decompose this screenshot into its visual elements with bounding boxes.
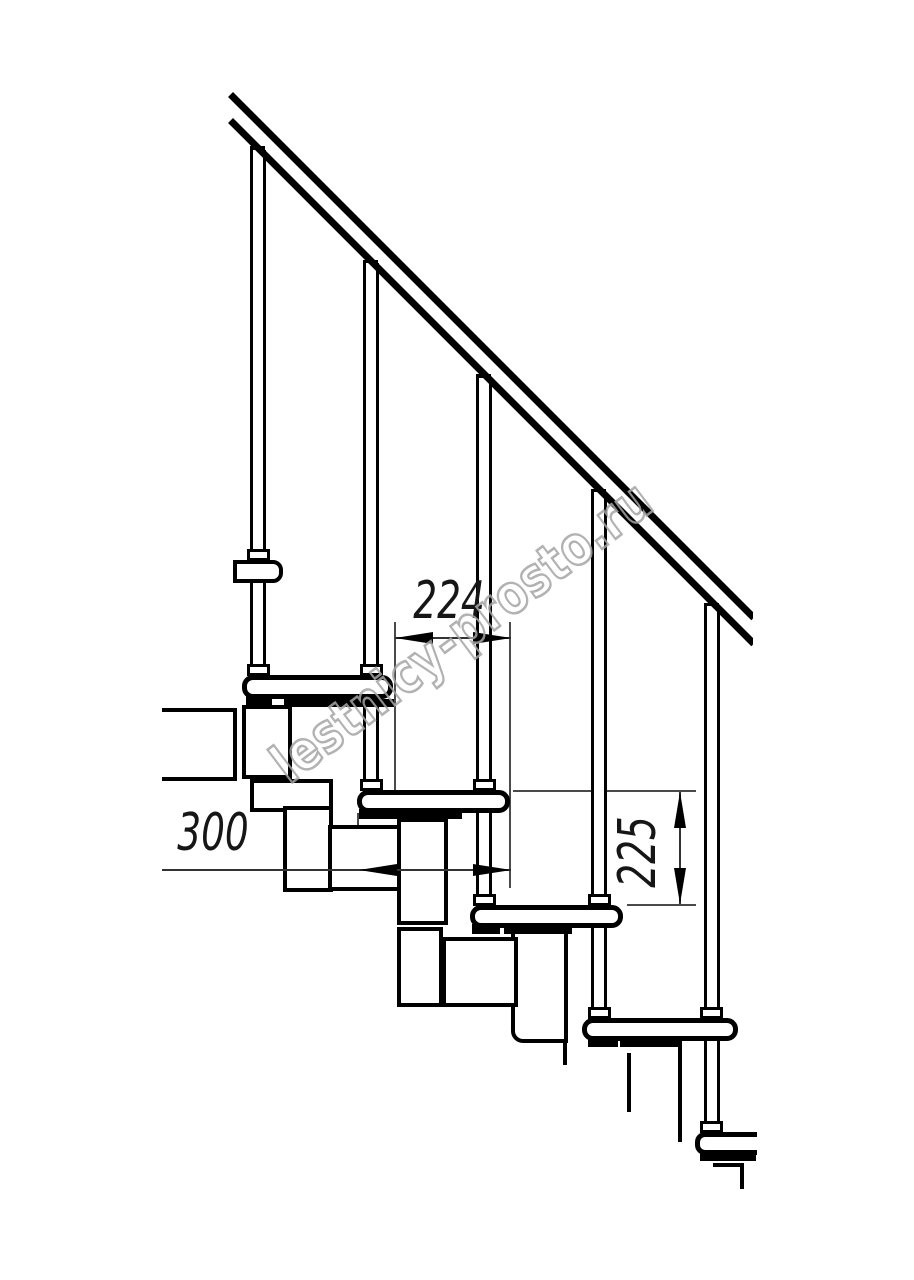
watermark: lestnicy-prosto.ru	[231, 445, 693, 818]
handrail-top-bar	[228, 92, 756, 620]
module-2a	[328, 825, 401, 891]
floor-slab	[162, 708, 237, 781]
dim-300-line	[162, 869, 511, 871]
tread-4	[582, 1018, 738, 1041]
baluster-4-collar-mid	[588, 894, 611, 906]
baluster-4-collar-bottom	[588, 1007, 611, 1019]
baluster-5-collar-bottom	[700, 1121, 723, 1133]
tread-3	[470, 905, 623, 928]
baluster-1-collar-bottom	[247, 664, 270, 676]
module-3-stub	[563, 1043, 567, 1065]
dim-300-arrow-left	[359, 864, 397, 876]
baluster-5	[704, 606, 720, 1134]
ext-line-224-left	[394, 622, 396, 790]
module-1a	[242, 705, 292, 779]
dim-going-label: 224	[399, 575, 500, 627]
module-4-edge-left	[627, 1053, 631, 1112]
tread-1	[242, 675, 393, 699]
baluster-4	[591, 492, 607, 1020]
cut-under-tread5-v	[740, 1163, 744, 1189]
module-4-edge-right	[678, 1043, 682, 1142]
dim-224-arrow-right	[473, 632, 511, 644]
dim-rise-label: 225	[612, 802, 664, 903]
baluster-5-collar-mid	[700, 1007, 723, 1019]
module-3a	[442, 937, 518, 1007]
dim-225-arrow-up	[674, 792, 686, 828]
staircase-technical-drawing: 224 300 225 lestnicy-prosto.ru	[0, 0, 914, 1280]
baluster-1	[250, 150, 266, 677]
baluster-2	[363, 263, 379, 792]
tread-5-cut	[695, 1132, 757, 1155]
module-3c	[511, 930, 568, 1043]
baluster-1-collar-mid	[247, 549, 270, 561]
module-2c	[397, 927, 443, 1007]
module-1c	[283, 806, 333, 892]
dim-225-arrow-down	[674, 868, 686, 904]
baluster-3-collar-bottom	[473, 894, 496, 906]
cut-under-tread5-h	[713, 1163, 743, 1167]
handrail-end-cut	[753, 590, 798, 675]
dim-224-arrow-left	[395, 632, 433, 644]
baluster-3-collar-mid	[473, 779, 496, 791]
handrail-bottom-bar	[228, 118, 756, 646]
module-2b	[397, 818, 448, 925]
ext-line-right-shared	[509, 622, 511, 888]
tread-0-fragment	[233, 560, 283, 583]
baluster-2-collar-bottom	[360, 779, 383, 791]
baluster-2-collar-mid	[360, 664, 383, 676]
tread-2	[357, 790, 510, 813]
dim-tread-depth-label: 300	[163, 807, 264, 859]
ext-line-225-bottom	[627, 904, 696, 906]
dim-300-arrow-right	[473, 864, 511, 876]
mount-plate-1	[284, 699, 394, 707]
